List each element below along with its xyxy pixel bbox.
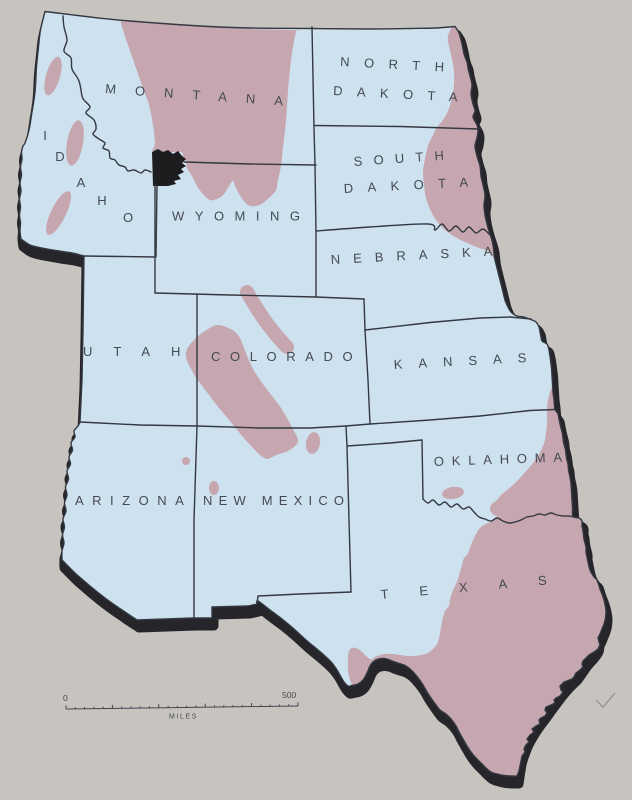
svg-text:MILES: MILES xyxy=(169,714,198,721)
svg-text:ARIZONA: ARIZONA xyxy=(75,493,192,508)
svg-text:D: D xyxy=(55,149,64,164)
svg-text:O: O xyxy=(123,210,133,225)
svg-text:WYOMING: WYOMING xyxy=(172,209,311,224)
svg-text:H: H xyxy=(97,193,106,208)
svg-text:500: 500 xyxy=(282,690,296,700)
svg-text:0: 0 xyxy=(63,693,68,703)
svg-text:I: I xyxy=(43,128,47,143)
svg-text:UTAH: UTAH xyxy=(83,344,201,359)
svg-text:COLORADO: COLORADO xyxy=(211,349,362,364)
svg-text:NEW MEXICO: NEW MEXICO xyxy=(203,493,350,508)
svg-text:A: A xyxy=(77,175,86,190)
